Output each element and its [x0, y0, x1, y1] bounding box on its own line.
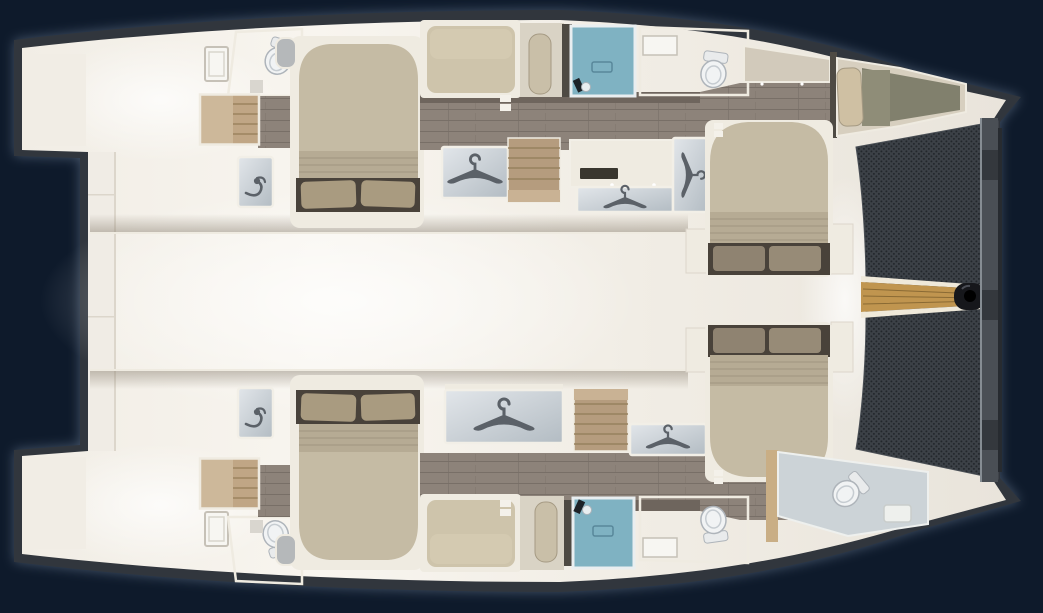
- cockpit-wall-seam-2: [88, 316, 116, 318]
- nightstand-lower-left: [686, 328, 708, 372]
- shower-tray-bow: [884, 505, 911, 522]
- shower-stall-upper: [571, 26, 635, 96]
- aft-passage-upper: [258, 96, 292, 148]
- forward-crossbeam: [980, 118, 1002, 482]
- cockpit-aft-wall: [88, 152, 116, 451]
- hanger-locker-lower-2: [630, 424, 706, 455]
- settee-pad-lower: [520, 496, 574, 570]
- wardrobe-handle-2: [800, 82, 803, 85]
- shower-stall-lower: [573, 498, 634, 568]
- bow-area: [856, 118, 1002, 482]
- wardrobe-handle-1: [760, 82, 763, 85]
- forepeak-pillow-upper: [836, 67, 863, 126]
- hanger-locker-upper-3: [673, 138, 708, 212]
- companionway-steps-upper: [508, 138, 560, 202]
- single-berth-upper: [420, 20, 521, 98]
- settee-pad-upper: [520, 23, 572, 97]
- catamaran-floor-plan: [0, 0, 1043, 613]
- aft-head-shelf-upper: [250, 80, 263, 93]
- vanity-sink-lower-aft: [238, 388, 273, 438]
- aft-double-bed-lower: [276, 375, 424, 570]
- shower-head-upper: [582, 83, 591, 92]
- aft-steps-upper: [200, 94, 259, 145]
- vanity-sink-upper-aft: [238, 157, 273, 207]
- forward-double-bed-upper: [686, 120, 853, 277]
- hanger-locker-lower-1: [445, 384, 563, 443]
- mid-head-sink-upper: [643, 36, 677, 55]
- cockpit-wall-seam-1: [88, 194, 116, 196]
- floor-plan-canvas: [0, 0, 1043, 613]
- aft-head-shelf-lower: [250, 520, 263, 533]
- aft-steps-lower: [200, 458, 259, 509]
- nightstand-upper-left: [686, 229, 708, 273]
- nightstand-lower-right: [831, 322, 853, 372]
- nightstand-upper-right: [831, 224, 853, 274]
- mid-head-sink-lower: [643, 538, 677, 557]
- corner-seat-lower: [276, 535, 296, 565]
- bowsprit-roller-eye: [964, 290, 976, 302]
- vanity-cabinet-upper: [570, 140, 675, 187]
- aft-passage-lower: [258, 465, 292, 517]
- hanger-locker-upper-2: [577, 186, 673, 212]
- shower-head-lower: [583, 506, 592, 515]
- corner-seat-upper: [276, 38, 296, 68]
- aft-double-bed-upper: [276, 36, 424, 228]
- cockpit-aft-wall-edge: [114, 152, 116, 451]
- bow-partition-lower: [766, 450, 778, 542]
- swim-platform-upper: [28, 54, 86, 146]
- swim-platform-lower: [28, 457, 86, 549]
- cabinet-slot-upper: [580, 168, 618, 179]
- hanger-locker-upper-1: [442, 147, 508, 198]
- companionway-steps-lower: [574, 389, 628, 451]
